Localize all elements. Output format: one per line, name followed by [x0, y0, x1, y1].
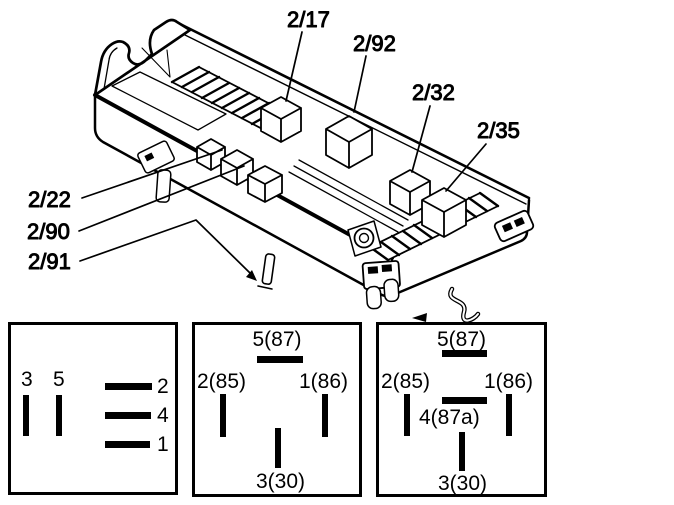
pin-label-5-87: 5(87): [379, 329, 544, 351]
pulled-out-terminal-pin: [258, 254, 275, 289]
callout-label-2-35: 2/35: [477, 118, 520, 143]
pin-label-4: 4: [157, 405, 169, 427]
pin-bar-30: [459, 432, 465, 471]
pin-bar-85: [220, 394, 226, 437]
pin-label-1-86: 1(86): [484, 371, 533, 393]
tab-body: [493, 210, 534, 243]
pin-bar-1: [105, 441, 150, 448]
pin-label-4-87a: 4(87a): [419, 407, 480, 429]
pin-bar-5: [56, 395, 62, 436]
pin-bar-86: [506, 394, 512, 436]
pin-bar-2: [105, 383, 152, 390]
terminal-pin: [262, 254, 275, 285]
leader-2-91: [80, 220, 250, 273]
pin-bar-30: [275, 428, 281, 468]
relay-box-figure: 2/17 2/92 2/32 2/35 2/22 2/90 2/91 3 5 2…: [0, 0, 674, 505]
pin-label-3: 3: [21, 369, 33, 391]
wire-clip-wedge: [412, 313, 427, 322]
relay-cube-2-17: [261, 97, 301, 142]
pin-bar-4: [105, 412, 151, 419]
pin-label-5-87: 5(87): [195, 329, 359, 351]
bottom-connector: [362, 261, 401, 309]
connector-tooth: [366, 286, 382, 309]
right-connector-tab: [493, 210, 534, 243]
pin-label-5: 5: [53, 369, 65, 391]
connector-cube-2-91: [248, 166, 282, 202]
pin-label-2: 2: [157, 376, 169, 398]
connector-tooth: [384, 279, 400, 302]
pin-bar-87a: [442, 397, 487, 404]
callout-label-2-17: 2/17: [287, 7, 330, 32]
pin-bar-85: [404, 394, 410, 436]
leader-2-92: [354, 56, 366, 112]
harness-wire: [412, 289, 478, 322]
pin-bar-86: [322, 394, 328, 437]
pin-label-2-85: 2(85): [197, 371, 246, 393]
callout-label-2-22: 2/22: [28, 187, 71, 212]
pinout-box-relay-4pin: 5(87) 2(85) 1(86) 3(30): [192, 322, 362, 497]
pin-bar-3: [23, 395, 29, 436]
pin-bar-87: [257, 356, 303, 363]
pinout-box-relay-5pin: 5(87) 2(85) 1(86) 4(87a) 3(30): [376, 322, 547, 497]
pin-bar-87: [442, 350, 487, 357]
callout-label-2-92: 2/92: [353, 31, 396, 56]
terminal-pin-foot: [258, 286, 272, 289]
pin-label-3-30: 3(30): [256, 471, 305, 493]
pin-label-1-86: 1(86): [299, 371, 348, 393]
pin-label-3-30: 3(30): [438, 473, 487, 495]
pin-label-2-85: 2(85): [381, 371, 430, 393]
pinout-box-socket-profile: 3 5 2 4 1: [8, 322, 178, 495]
pin-label-1: 1: [157, 434, 169, 456]
callout-label-2-32: 2/32: [412, 80, 455, 105]
callout-label-2-90: 2/90: [27, 219, 70, 244]
connector-slot: [368, 266, 378, 274]
connector-slot: [382, 264, 392, 272]
callout-label-2-91: 2/91: [28, 249, 71, 274]
